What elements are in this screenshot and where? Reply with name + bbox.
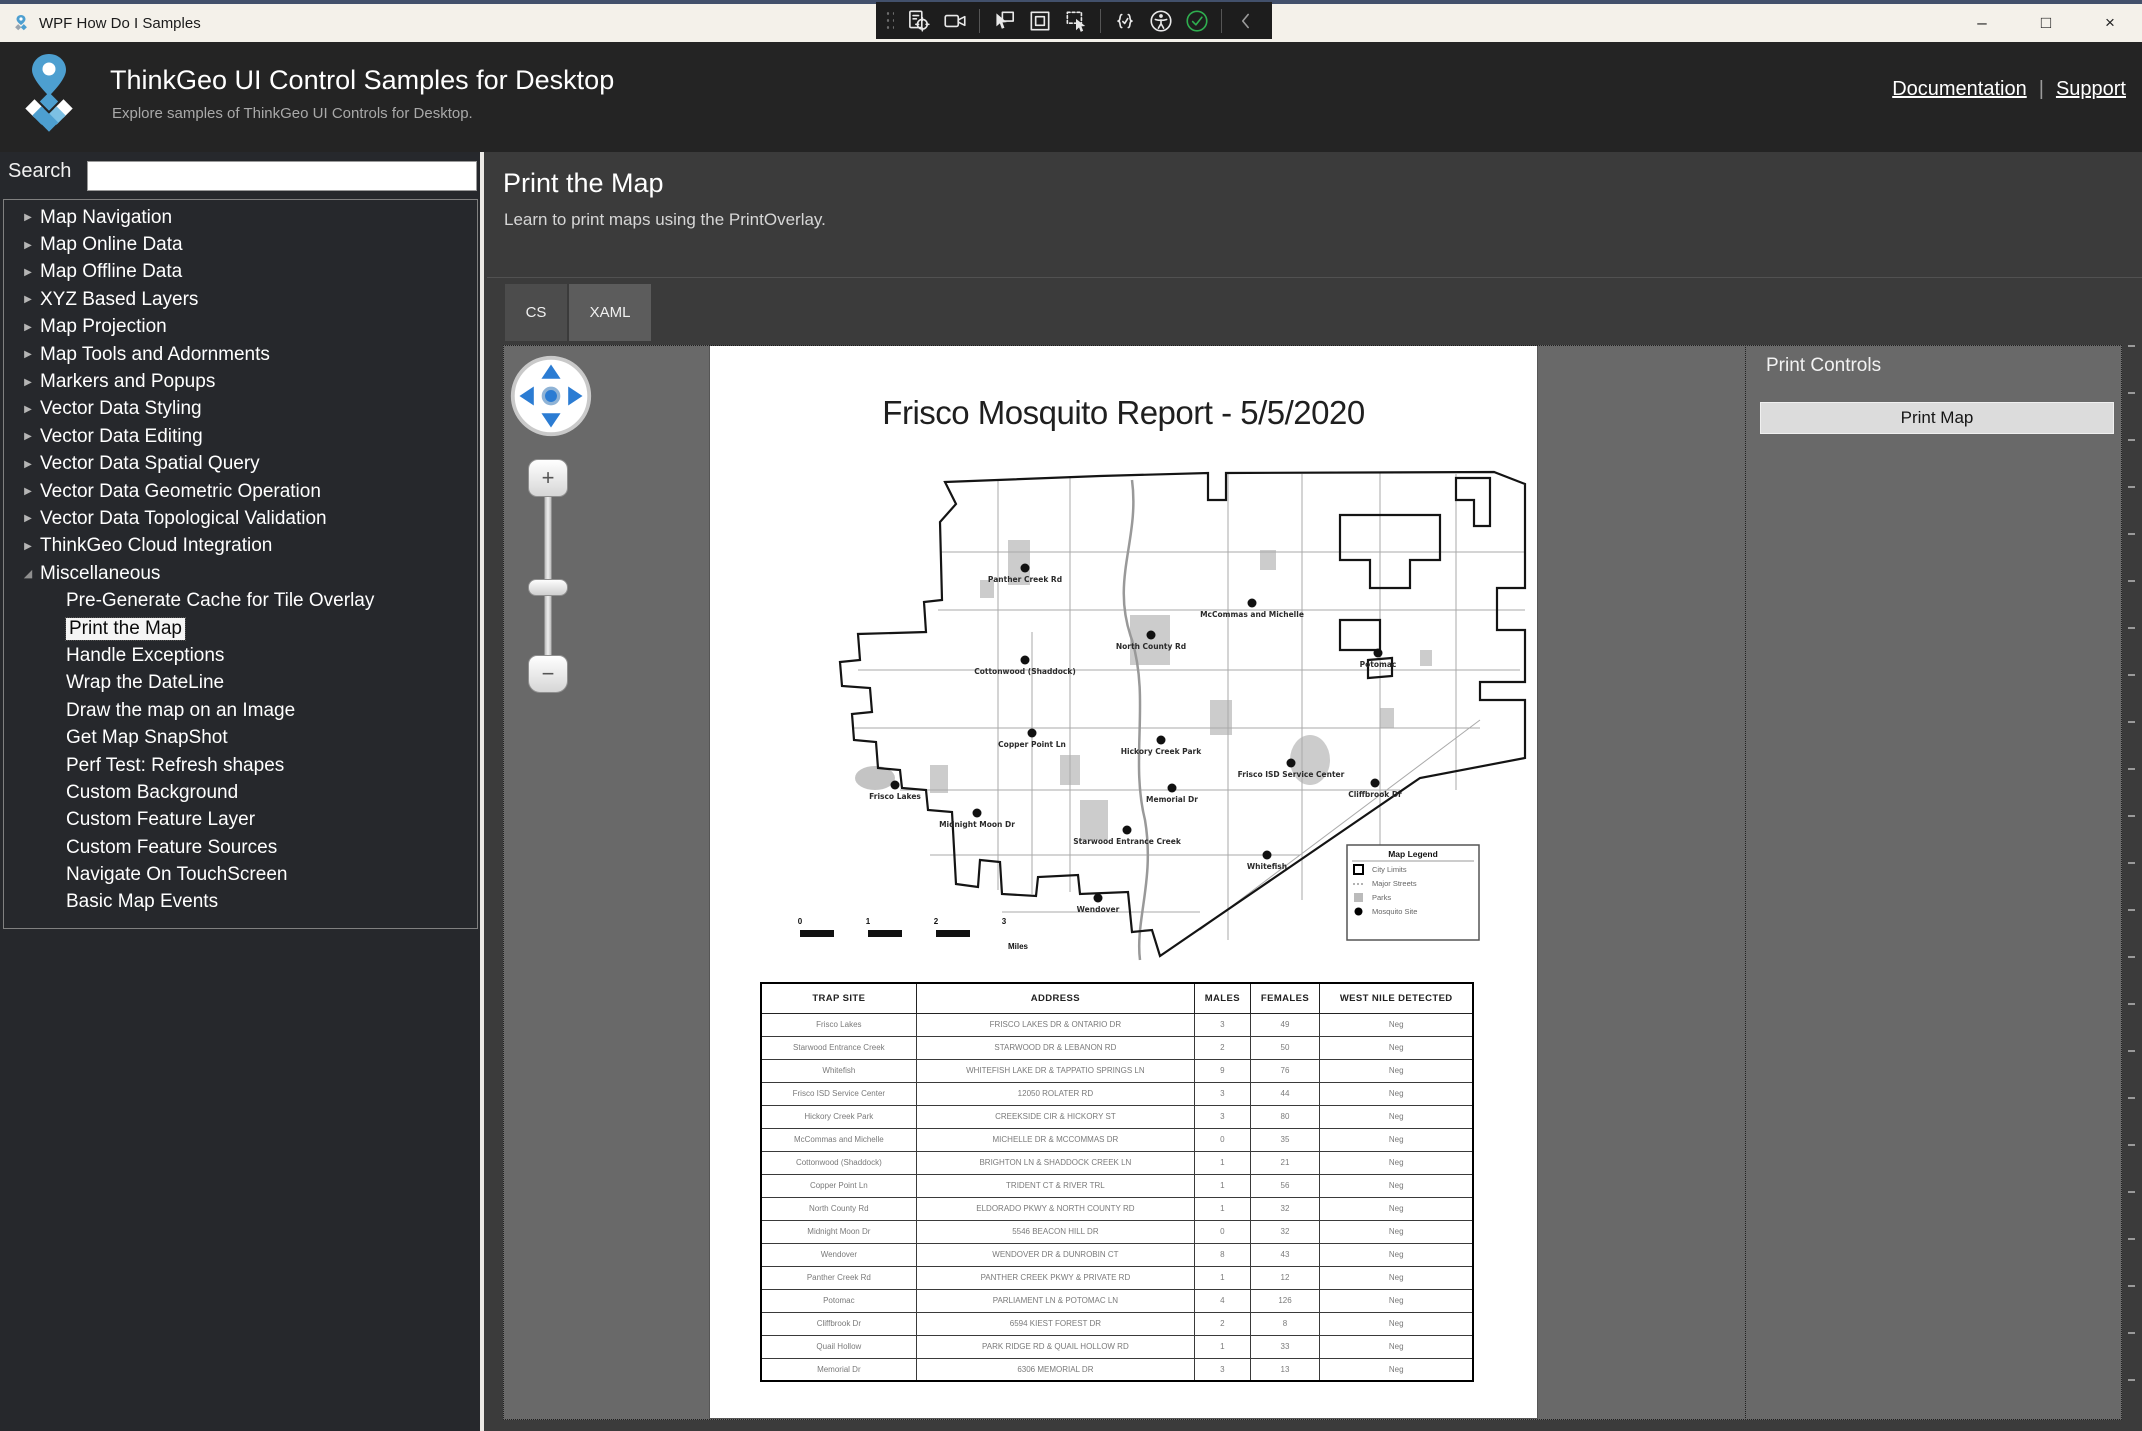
table-row: WhitefishWHITEFISH LAKE DR & TAPPATIO SP… xyxy=(761,1059,1473,1082)
tab-xaml[interactable]: XAML xyxy=(569,284,651,341)
table-cell: 1 xyxy=(1195,1197,1251,1220)
tab-cs[interactable]: CS xyxy=(505,284,567,341)
tree-item-label: Map Tools and Adornments xyxy=(40,344,270,366)
scalebar-label: 3 xyxy=(1002,917,1007,926)
table-cell: PANTHER CREEK PKWY & PRIVATE RD xyxy=(916,1266,1194,1289)
table-cell: 3 xyxy=(1195,1358,1251,1381)
table-cell: 80 xyxy=(1250,1105,1320,1128)
scalebar-label: 1 xyxy=(866,917,871,926)
code-check-icon[interactable] xyxy=(1112,6,1138,36)
tree-item-draw-the-map-on-an-image[interactable]: Draw the map on an Image xyxy=(4,697,477,724)
table-cell: FRISCO LAKES DR & ONTARIO DR xyxy=(916,1013,1194,1036)
mosquito-site-hickory-creek-park: Hickory Creek Park xyxy=(1121,736,1202,757)
table-cell: 35 xyxy=(1250,1128,1320,1151)
region-capture-icon[interactable] xyxy=(1063,6,1089,36)
table-cell: 0 xyxy=(1195,1128,1251,1151)
tree-item-vector-data-spatial-query[interactable]: ▶Vector Data Spatial Query xyxy=(4,451,477,478)
minimize-button[interactable]: – xyxy=(1950,4,2014,42)
frisco-map-svg: Panther Creek RdMcCommas and MichelleNor… xyxy=(780,460,1530,965)
table-cell: Panther Creek Rd xyxy=(761,1266,916,1289)
city-limits-symbol xyxy=(1354,865,1363,874)
table-row: PotomacPARLIAMENT LN & POTOMAC LN4126Neg xyxy=(761,1289,1473,1312)
expand-arrow-icon[interactable]: ▶ xyxy=(18,541,38,552)
scalebar-segment xyxy=(868,930,902,937)
table-row: Frisco ISD Service Center12050 ROLATER R… xyxy=(761,1082,1473,1105)
table-row: Frisco LakesFRISCO LAKES DR & ONTARIO DR… xyxy=(761,1013,1473,1036)
tree-item-get-map-snapshot[interactable]: Get Map SnapShot xyxy=(4,724,477,751)
table-cell: 6306 MEMORIAL DR xyxy=(916,1358,1194,1381)
tree-item-map-projection[interactable]: ▶Map Projection xyxy=(4,314,477,341)
table-row: Cliffbrook Dr6594 KIEST FOREST DR28Neg xyxy=(761,1312,1473,1335)
table-cell: Neg xyxy=(1320,1243,1473,1266)
tree-item-map-offline-data[interactable]: ▶Map Offline Data xyxy=(4,259,477,286)
app-icon xyxy=(12,14,30,32)
search-label: Search xyxy=(8,160,71,183)
svg-text:Starwood Entrance Creek: Starwood Entrance Creek xyxy=(1073,837,1182,846)
tree-item-label: Draw the map on an Image xyxy=(66,700,295,722)
screen-capture-toolbar[interactable] xyxy=(876,2,1272,39)
table-cell: 3 xyxy=(1195,1105,1251,1128)
table-cell: Neg xyxy=(1320,1013,1473,1036)
toolbar-separator xyxy=(979,9,980,33)
map-legend-title: Map Legend xyxy=(1388,849,1438,859)
tree-item-label: Map Navigation xyxy=(40,207,172,229)
table-cell: 8 xyxy=(1250,1312,1320,1335)
tree-item-label: Map Projection xyxy=(40,316,167,338)
table-cell: Hickory Creek Park xyxy=(761,1105,916,1128)
table-cell: 3 xyxy=(1195,1013,1251,1036)
table-cell: Memorial Dr xyxy=(761,1358,916,1381)
map-legend: Map LegendCity LimitsMajor StreetsParksM… xyxy=(1347,845,1479,940)
table-row: WendoverWENDOVER DR & DUNROBIN CT843Neg xyxy=(761,1243,1473,1266)
record-target-icon[interactable] xyxy=(905,6,931,36)
table-row: Quail HollowPARK RIDGE RD & QUAIL HOLLOW… xyxy=(761,1335,1473,1358)
table-cell: Neg xyxy=(1320,1174,1473,1197)
tree-item-thinkgeo-cloud-integration[interactable]: ▶ThinkGeo Cloud Integration xyxy=(4,533,477,560)
expand-arrow-icon[interactable]: ▶ xyxy=(18,349,38,360)
column-header-address: ADDRESS xyxy=(916,983,1194,1013)
print-map-button[interactable]: Print Map xyxy=(1760,402,2114,434)
window-frame-icon[interactable] xyxy=(1027,6,1053,36)
legend-item-label: City Limits xyxy=(1372,865,1407,874)
tree-item-map-navigation[interactable]: ▶Map Navigation xyxy=(4,204,477,231)
grid-splitter-ticks[interactable] xyxy=(2128,300,2135,1410)
link-separator: | xyxy=(2039,78,2044,101)
table-cell: Neg xyxy=(1320,1358,1473,1381)
tree-item-pre-generate-cache-for-tile-overlay[interactable]: Pre-Generate Cache for Tile Overlay xyxy=(4,587,477,614)
tree-item-handle-exceptions[interactable]: Handle Exceptions xyxy=(4,642,477,669)
table-cell: BRIGHTON LN & SHADDOCK CREEK LN xyxy=(916,1151,1194,1174)
toolbar-separator xyxy=(1100,9,1101,33)
svg-text:Memorial Dr: Memorial Dr xyxy=(1146,795,1198,804)
table-cell: Neg xyxy=(1320,1082,1473,1105)
tabstrip-divider xyxy=(487,277,2142,278)
table-cell: Quail Hollow xyxy=(761,1335,916,1358)
print-controls-panel: Print Controls Print Map xyxy=(1745,345,2122,1420)
table-cell: STARWOOD DR & LEBANON RD xyxy=(916,1036,1194,1059)
legend-item-label: Mosquito Site xyxy=(1372,907,1417,916)
svg-text:North County Rd: North County Rd xyxy=(1116,642,1186,651)
tree-item-vector-data-styling[interactable]: ▶Vector Data Styling xyxy=(4,396,477,423)
accessibility-icon[interactable] xyxy=(1148,6,1174,36)
column-header-trap-site: TRAP SITE xyxy=(761,983,916,1013)
table-cell: 8 xyxy=(1195,1243,1251,1266)
table-cell: 5546 BEACON HILL DR xyxy=(916,1220,1194,1243)
table-cell: PARLIAMENT LN & POTOMAC LN xyxy=(916,1289,1194,1312)
table-cell: Neg xyxy=(1320,1266,1473,1289)
table-cell: Neg xyxy=(1320,1197,1473,1220)
table-cell: Wendover xyxy=(761,1243,916,1266)
table-cell: Neg xyxy=(1320,1128,1473,1151)
mosquito-site-cliffbrook-dr: Cliffbrook Dr xyxy=(1348,779,1402,800)
app-header xyxy=(0,42,2142,152)
expand-arrow-icon[interactable]: ▶ xyxy=(18,267,38,278)
tree-item-label: Navigate On TouchScreen xyxy=(66,864,287,886)
expand-arrow-icon[interactable]: ▶ xyxy=(18,404,38,415)
table-cell: Cliffbrook Dr xyxy=(761,1312,916,1335)
report-title: Frisco Mosquito Report - 5/5/2020 xyxy=(710,394,1537,432)
mosquito-site-cottonwood-shaddock: Cottonwood (Shaddock) xyxy=(974,656,1076,677)
close-button[interactable]: × xyxy=(2078,4,2142,42)
table-cell: 56 xyxy=(1250,1174,1320,1197)
column-header-females: FEMALES xyxy=(1250,983,1320,1013)
table-row: Copper Point LnTRIDENT CT & RIVER TRL156… xyxy=(761,1174,1473,1197)
table-cell: 32 xyxy=(1250,1197,1320,1220)
table-cell: 33 xyxy=(1250,1335,1320,1358)
app-title: ThinkGeo UI Control Samples for Desktop xyxy=(110,65,614,96)
table-cell: 32 xyxy=(1250,1220,1320,1243)
camera-icon[interactable] xyxy=(942,6,968,36)
tree-item-vector-data-topological-validation[interactable]: ▶Vector Data Topological Validation xyxy=(4,505,477,532)
print-preview-page: Frisco Mosquito Report - 5/5/2020 xyxy=(710,346,1537,1418)
tree-item-label: ThinkGeo Cloud Integration xyxy=(40,535,272,557)
zoom-out-button[interactable]: − xyxy=(528,655,568,693)
mosquito-site-memorial-dr: Memorial Dr xyxy=(1146,784,1198,805)
scalebar-label: 0 xyxy=(798,917,803,926)
table-cell: 1 xyxy=(1195,1174,1251,1197)
table-cell: Copper Point Ln xyxy=(761,1174,916,1197)
tree-item-label: Get Map SnapShot xyxy=(66,727,228,749)
tree-item-label: Pre-Generate Cache for Tile Overlay xyxy=(66,590,374,612)
expand-arrow-icon[interactable]: ▶ xyxy=(18,212,38,223)
table-row: Memorial Dr6306 MEMORIAL DR313Neg xyxy=(761,1358,1473,1381)
header-link-documentation[interactable]: Documentation xyxy=(1892,78,2027,101)
svg-text:Frisco ISD Service Center: Frisco ISD Service Center xyxy=(1238,770,1345,779)
table-cell: Neg xyxy=(1320,1151,1473,1174)
scalebar-label: 2 xyxy=(934,917,939,926)
tree-item-map-online-data[interactable]: ▶Map Online Data xyxy=(4,231,477,258)
legend-item-label: Parks xyxy=(1372,893,1391,902)
table-cell: 0 xyxy=(1195,1220,1251,1243)
table-cell: 6594 KIEST FOREST DR xyxy=(916,1312,1194,1335)
chevron-left-icon[interactable] xyxy=(1233,6,1259,36)
table-cell: 49 xyxy=(1250,1013,1320,1036)
scale-bar: 0123Miles xyxy=(798,917,1029,951)
table-row: Starwood Entrance CreekSTARWOOD DR & LEB… xyxy=(761,1036,1473,1059)
collapse-arrow-icon[interactable]: ◢ xyxy=(18,567,38,580)
table-cell: 44 xyxy=(1250,1082,1320,1105)
expand-arrow-icon[interactable]: ▶ xyxy=(18,294,38,305)
print-controls-title: Print Controls xyxy=(1766,355,1881,377)
tree-item-label: Custom Feature Layer xyxy=(66,809,255,831)
tree-item-label: Map Online Data xyxy=(40,234,183,256)
tree-item-custom-feature-layer[interactable]: Custom Feature Layer xyxy=(4,807,477,834)
tree-item-map-tools-and-adornments[interactable]: ▶Map Tools and Adornments xyxy=(4,341,477,368)
sample-tree: ▶Map Navigation▶Map Online Data▶Map Offl… xyxy=(3,199,478,929)
table-cell: 126 xyxy=(1250,1289,1320,1312)
table-cell: 12050 ROLATER RD xyxy=(916,1082,1194,1105)
mosquito-site-wendover: Wendover xyxy=(1077,894,1120,915)
tree-item-label: Vector Data Geometric Operation xyxy=(40,481,321,503)
table-cell: Neg xyxy=(1320,1335,1473,1358)
svg-text:Wendover: Wendover xyxy=(1077,905,1120,914)
svg-text:Whitefish: Whitefish xyxy=(1247,862,1287,871)
svg-text:Copper Point Ln: Copper Point Ln xyxy=(998,740,1066,749)
tree-item-print-the-map[interactable]: Print the Map xyxy=(4,615,477,642)
column-header-males: MALES xyxy=(1195,983,1251,1013)
table-cell: 21 xyxy=(1250,1151,1320,1174)
map-pan-compass xyxy=(508,353,594,439)
expand-arrow-icon[interactable]: ▶ xyxy=(18,459,38,470)
tree-item-label: Vector Data Spatial Query xyxy=(40,453,260,475)
check-circle-icon[interactable] xyxy=(1184,6,1210,36)
drag-handle-icon[interactable] xyxy=(884,9,894,33)
tree-item-label: Print the Map xyxy=(66,618,185,640)
mosquito-site-whitefish: Whitefish xyxy=(1247,851,1287,872)
tree-item-markers-and-popups[interactable]: ▶Markers and Popups xyxy=(4,368,477,395)
cursor-select-icon[interactable] xyxy=(991,6,1017,36)
tree-item-label: Wrap the DateLine xyxy=(66,672,224,694)
table-cell: 3 xyxy=(1195,1082,1251,1105)
table-cell: MICHELLE DR & MCCOMMAS DR xyxy=(916,1128,1194,1151)
tree-item-label: Miscellaneous xyxy=(40,563,160,585)
sample-subtitle: Learn to print maps using the PrintOverl… xyxy=(504,210,826,230)
expand-arrow-icon[interactable]: ▶ xyxy=(18,513,38,524)
table-cell: 43 xyxy=(1250,1243,1320,1266)
parks-symbol xyxy=(1354,893,1363,902)
tree-item-label: Custom Background xyxy=(66,782,238,804)
expand-arrow-icon[interactable]: ▶ xyxy=(18,486,38,497)
table-row: McCommas and MichelleMICHELLE DR & MCCOM… xyxy=(761,1128,1473,1151)
svg-text:Cottonwood (Shaddock): Cottonwood (Shaddock) xyxy=(974,667,1076,676)
pan-center-button[interactable] xyxy=(543,388,558,403)
tree-item-label: Vector Data Editing xyxy=(40,426,203,448)
window-title: WPF How Do I Samples xyxy=(39,15,201,32)
table-cell: McCommas and Michelle xyxy=(761,1128,916,1151)
tree-item-custom-feature-sources[interactable]: Custom Feature Sources xyxy=(4,834,477,861)
table-cell: CREEKSIDE CIR & HICKORY ST xyxy=(916,1105,1194,1128)
table-cell: North County Rd xyxy=(761,1197,916,1220)
tree-item-basic-map-events[interactable]: Basic Map Events xyxy=(4,889,477,916)
svg-text:Midnight Moon Dr: Midnight Moon Dr xyxy=(939,820,1015,829)
tree-item-label: Basic Map Events xyxy=(66,891,218,913)
expand-arrow-icon[interactable]: ▶ xyxy=(18,322,38,333)
table-cell: WENDOVER DR & DUNROBIN CT xyxy=(916,1243,1194,1266)
table-cell: 13 xyxy=(1250,1358,1320,1381)
sample-title: Print the Map xyxy=(503,168,664,199)
zoom-slider-thumb[interactable] xyxy=(528,579,568,596)
tree-item-navigate-on-touchscreen[interactable]: Navigate On TouchScreen xyxy=(4,861,477,888)
tree-item-custom-background[interactable]: Custom Background xyxy=(4,779,477,806)
table-cell: Whitefish xyxy=(761,1059,916,1082)
table-cell: Neg xyxy=(1320,1036,1473,1059)
map-viewport[interactable]: Frisco Mosquito Report - 5/5/2020 xyxy=(503,345,1745,1420)
table-cell: Frisco ISD Service Center xyxy=(761,1082,916,1105)
zoom-slider-track[interactable] xyxy=(544,473,552,679)
table-cell: 1 xyxy=(1195,1335,1251,1358)
window-controls: –□× xyxy=(1950,4,2142,42)
tree-item-xyz-based-layers[interactable]: ▶XYZ Based Layers xyxy=(4,286,477,313)
tree-item-vector-data-editing[interactable]: ▶Vector Data Editing xyxy=(4,423,477,450)
table-cell: 2 xyxy=(1195,1036,1251,1059)
tree-item-perf-test-refresh-shapes[interactable]: Perf Test: Refresh shapes xyxy=(4,752,477,779)
table-row: Midnight Moon Dr5546 BEACON HILL DR032Ne… xyxy=(761,1220,1473,1243)
maximize-button[interactable]: □ xyxy=(2014,4,2078,42)
table-cell: 76 xyxy=(1250,1059,1320,1082)
scalebar-unit: Miles xyxy=(1008,942,1029,951)
table-cell: Potomac xyxy=(761,1289,916,1312)
search-input[interactable] xyxy=(87,161,477,191)
table-cell: 50 xyxy=(1250,1036,1320,1059)
header-links: Documentation|Support xyxy=(1892,78,2126,101)
table-cell: 4 xyxy=(1195,1289,1251,1312)
app-subtitle: Explore samples of ThinkGeo UI Controls … xyxy=(112,105,473,122)
expand-arrow-icon[interactable]: ▶ xyxy=(18,431,38,442)
app-window: WPF How Do I Samples –□× ThinkGeo UI Con… xyxy=(0,0,2142,1431)
svg-text:Potomac: Potomac xyxy=(1360,660,1397,669)
zoom-in-button[interactable]: + xyxy=(528,459,568,497)
table-row: Panther Creek RdPANTHER CREEK PKWY & PRI… xyxy=(761,1266,1473,1289)
expand-arrow-icon[interactable]: ▶ xyxy=(18,240,38,251)
legend-item-label: Major Streets xyxy=(1372,879,1417,888)
tree-item-label: Markers and Popups xyxy=(40,371,215,393)
toolbar-separator xyxy=(1221,9,1222,33)
svg-text:Frisco Lakes: Frisco Lakes xyxy=(869,792,921,801)
header-link-support[interactable]: Support xyxy=(2056,78,2126,101)
table-cell: Frisco Lakes xyxy=(761,1013,916,1036)
mosquito-site-symbol xyxy=(1355,908,1363,916)
svg-text:Cliffbrook Dr: Cliffbrook Dr xyxy=(1348,790,1402,799)
table-row: Hickory Creek ParkCREEKSIDE CIR & HICKOR… xyxy=(761,1105,1473,1128)
tree-item-label: Handle Exceptions xyxy=(66,645,224,667)
table-header-row: TRAP SITEADDRESSMALESFEMALESWEST NILE DE… xyxy=(761,983,1473,1013)
table-cell: 9 xyxy=(1195,1059,1251,1082)
table-cell: Neg xyxy=(1320,1059,1473,1082)
table-row: North County RdELDORADO PKWY & NORTH COU… xyxy=(761,1197,1473,1220)
table-cell: ELDORADO PKWY & NORTH COUNTY RD xyxy=(916,1197,1194,1220)
scalebar-segment xyxy=(800,930,834,937)
table-cell: Midnight Moon Dr xyxy=(761,1220,916,1243)
table-cell: Neg xyxy=(1320,1312,1473,1335)
table-cell: Neg xyxy=(1320,1289,1473,1312)
table-row: Cottonwood (Shaddock)BRIGHTON LN & SHADD… xyxy=(761,1151,1473,1174)
svg-text:Panther Creek Rd: Panther Creek Rd xyxy=(988,575,1062,584)
tree-item-miscellaneous[interactable]: ◢Miscellaneous xyxy=(4,560,477,587)
tree-item-label: Vector Data Styling xyxy=(40,398,202,420)
table-cell: 1 xyxy=(1195,1266,1251,1289)
table-cell: 12 xyxy=(1250,1266,1320,1289)
table-cell: 1 xyxy=(1195,1151,1251,1174)
svg-text:Hickory Creek Park: Hickory Creek Park xyxy=(1121,747,1202,756)
table-cell: Neg xyxy=(1320,1220,1473,1243)
tree-item-label: XYZ Based Layers xyxy=(40,289,198,311)
mosquito-report-table: TRAP SITEADDRESSMALESFEMALESWEST NILE DE… xyxy=(760,982,1474,1382)
tree-item-label: Perf Test: Refresh shapes xyxy=(66,755,284,777)
table-cell: Starwood Entrance Creek xyxy=(761,1036,916,1059)
svg-text:McCommas and Michelle: McCommas and Michelle xyxy=(1200,610,1304,619)
column-header-west-nile-detected: WEST NILE DETECTED xyxy=(1320,983,1473,1013)
tree-item-label: Vector Data Topological Validation xyxy=(40,508,327,530)
tree-item-label: Map Offline Data xyxy=(40,261,182,283)
tree-item-label: Custom Feature Sources xyxy=(66,837,277,859)
mosquito-site-mccommas-and-michelle: McCommas and Michelle xyxy=(1200,599,1304,620)
table-cell: Neg xyxy=(1320,1105,1473,1128)
table-cell: Cottonwood (Shaddock) xyxy=(761,1151,916,1174)
table-cell: PARK RIDGE RD & QUAIL HOLLOW RD xyxy=(916,1335,1194,1358)
table-cell: TRIDENT CT & RIVER TRL xyxy=(916,1174,1194,1197)
expand-arrow-icon[interactable]: ▶ xyxy=(18,377,38,388)
scalebar-segment xyxy=(936,930,970,937)
thinkgeo-logo xyxy=(16,52,82,140)
bottom-strip xyxy=(484,1420,2142,1431)
tree-item-wrap-the-dateline[interactable]: Wrap the DateLine xyxy=(4,670,477,697)
tree-item-vector-data-geometric-operation[interactable]: ▶Vector Data Geometric Operation xyxy=(4,478,477,505)
table-cell: WHITEFISH LAKE DR & TAPPATIO SPRINGS LN xyxy=(916,1059,1194,1082)
table-cell: 2 xyxy=(1195,1312,1251,1335)
